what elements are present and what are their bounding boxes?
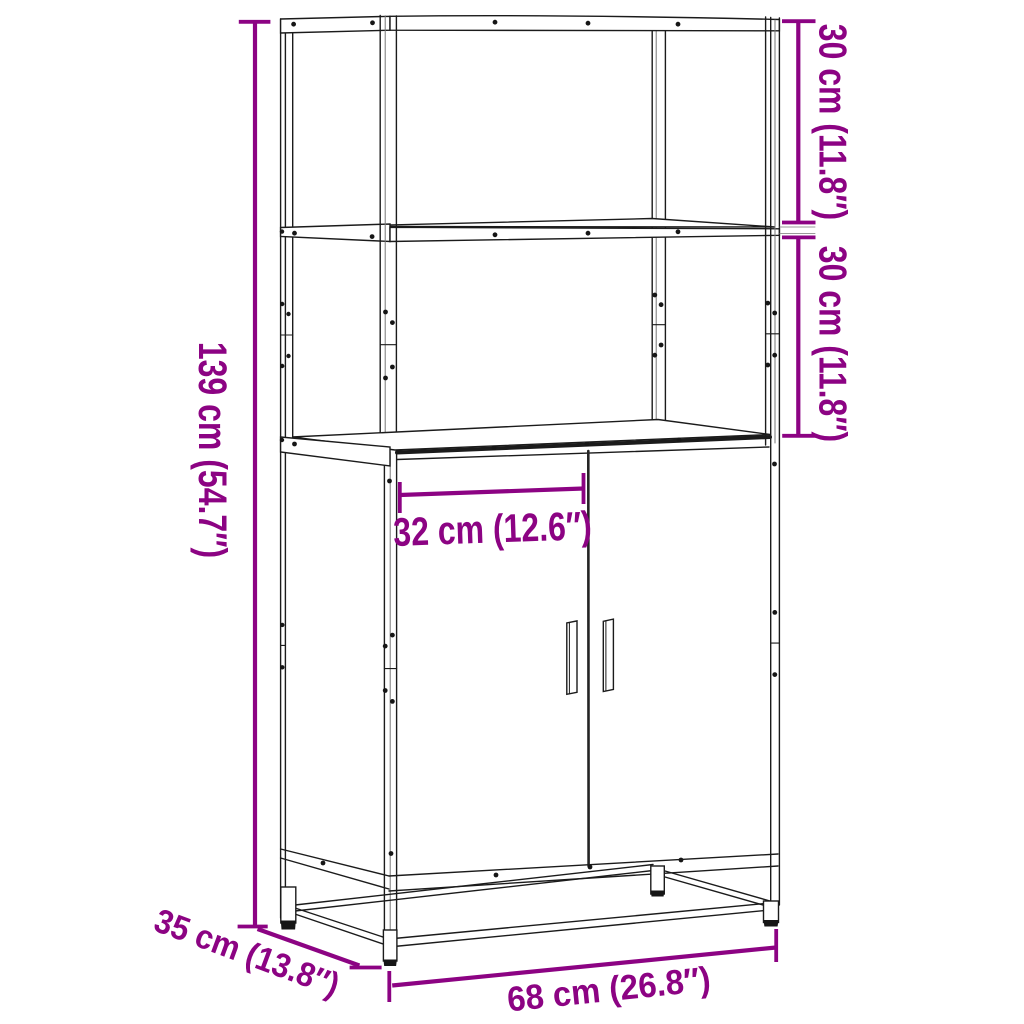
- svg-text:32 cm (12.6″): 32 cm (12.6″): [393, 503, 593, 555]
- svg-text:30 cm (11.8″): 30 cm (11.8″): [811, 246, 853, 442]
- svg-text:30 cm (11.8″): 30 cm (11.8″): [811, 24, 853, 220]
- svg-text:139 cm (54.7″): 139 cm (54.7″): [190, 342, 235, 558]
